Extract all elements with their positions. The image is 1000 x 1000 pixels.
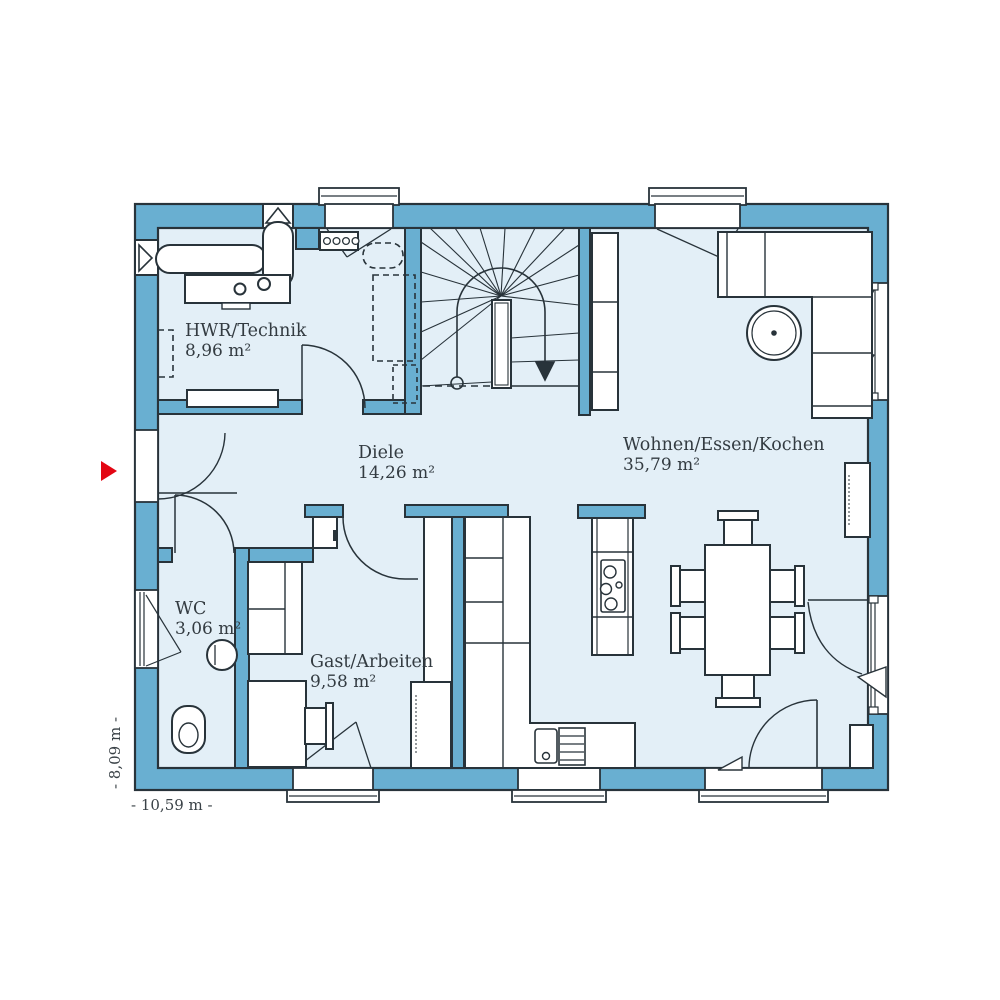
wall-cap-shaft (305, 505, 343, 517)
room-area-diele: 14,26 m² (358, 463, 435, 483)
chair-seat (724, 520, 752, 545)
desk-chair-back (326, 703, 333, 749)
washbasin (207, 640, 237, 670)
shaft-tick (333, 530, 336, 541)
chair-back (718, 511, 758, 520)
dining-table (705, 545, 770, 675)
chair-seat (722, 675, 754, 698)
wall-gast-kitchen (452, 517, 464, 768)
room-area-wc: 3,06 m² (175, 619, 241, 639)
wall-wc-north-stub (158, 548, 172, 562)
room-area-gast: 9,58 m² (310, 672, 376, 692)
room-label-wc: WC (175, 599, 206, 619)
counter-notch (222, 303, 250, 309)
gast-radiator (411, 682, 451, 768)
faucet-icon (543, 753, 550, 760)
vent-left-icon (135, 240, 158, 275)
room-area-wohnen: 35,79 m² (623, 455, 700, 475)
chair-back (671, 566, 680, 606)
burner-icon (601, 584, 612, 595)
chair-seat (680, 570, 705, 602)
chair-seat (680, 617, 705, 649)
hwr-cabinet (187, 390, 278, 407)
chair-back (795, 566, 804, 606)
sink-drain-icon (258, 278, 270, 290)
room-label-diele: Diele (358, 443, 404, 463)
coat-hook-icon (324, 238, 331, 245)
wall-stairwell-east (579, 228, 590, 415)
coat-hook-icon (333, 238, 340, 245)
dimension-height: - 8,09 m - (106, 717, 124, 789)
chair-back (671, 613, 680, 653)
chair-back (716, 698, 760, 707)
guest-sofa (248, 562, 302, 654)
wall-cap-island (578, 505, 645, 518)
toilet-bowl (179, 723, 198, 747)
room-area-hwr: 8,96 m² (185, 341, 251, 361)
burner-icon (616, 582, 622, 588)
sink-drain-icon (235, 284, 246, 295)
coat-hook-icon (352, 238, 359, 245)
laundry-worktop (156, 245, 266, 273)
desk (248, 681, 306, 767)
wall-cap-kitchen (405, 505, 508, 517)
floor-plan-page: HWR/Technik 8,96 m² Diele 14,26 m² WC 3,… (0, 0, 1000, 1000)
room-label-wohnen: Wohnen/Essen/Kochen (623, 435, 825, 455)
corner-cabinet (850, 725, 873, 768)
dimension-width: - 10,59 m - (131, 796, 213, 814)
shelf-cabinet (592, 233, 618, 410)
room-label-hwr: HWR/Technik (185, 321, 307, 341)
room-label-gast: Gast/Arbeiten (310, 652, 433, 672)
wall-stairwell-west (405, 228, 421, 414)
chair-back (795, 613, 804, 653)
burner-icon (604, 566, 616, 578)
chair-seat (770, 570, 795, 602)
floor-plan-drawing: HWR/Technik 8,96 m² Diele 14,26 m² WC 3,… (0, 0, 1000, 1000)
chair-seat (770, 617, 795, 649)
wall-stub-entry (296, 228, 319, 249)
coat-hook-icon (343, 238, 350, 245)
burner-icon (605, 598, 617, 610)
